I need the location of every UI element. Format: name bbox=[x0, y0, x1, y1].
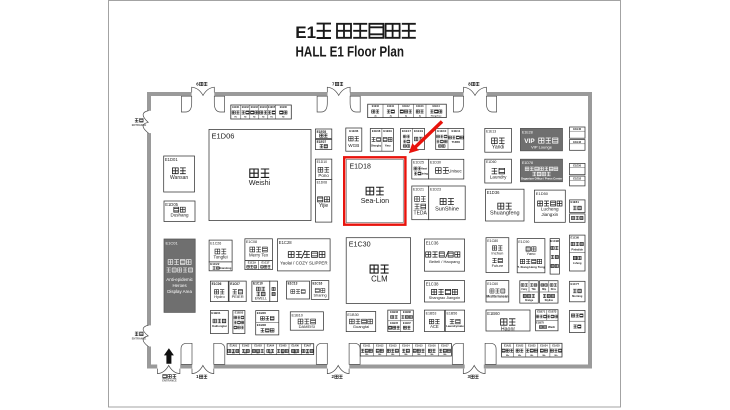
svg-text:E1A16: E1A16 bbox=[428, 345, 436, 348]
svg-text:E1B10: E1B10 bbox=[292, 313, 303, 317]
svg-text:E1B75: E1B75 bbox=[536, 321, 544, 325]
svg-text:E1E06: E1E06 bbox=[280, 106, 288, 109]
svg-text:Inchun: Inchun bbox=[491, 251, 503, 256]
svg-text:E1A25: E1A25 bbox=[552, 344, 560, 347]
svg-text:Yaolai / COZY SLIPPER: Yaolai / COZY SLIPPER bbox=[280, 261, 327, 266]
svg-text:E1D10: E1D10 bbox=[317, 160, 327, 164]
svg-text:Shuangfeng: Shuangfeng bbox=[490, 211, 520, 217]
svg-text:Tbk: Tbk bbox=[531, 288, 536, 291]
svg-text:Merry Tex: Merry Tex bbox=[249, 253, 269, 258]
svg-text:E1C08: E1C08 bbox=[246, 240, 257, 244]
svg-text:E1B35: E1B35 bbox=[390, 321, 398, 325]
svg-text:E1D18: E1D18 bbox=[350, 164, 372, 171]
svg-text:Laundrymate: Laundrymate bbox=[446, 324, 464, 328]
svg-text:E1B30: E1B30 bbox=[347, 313, 358, 317]
svg-text:E1E05: E1E05 bbox=[268, 106, 276, 109]
svg-text:E1A15: E1A15 bbox=[415, 345, 423, 348]
svg-text:E1E40: E1E40 bbox=[573, 127, 581, 131]
svg-text:E1E01: E1E01 bbox=[232, 106, 240, 109]
svg-text:E1: E1 bbox=[295, 23, 316, 42]
svg-text:Hydro: Hydro bbox=[214, 294, 225, 299]
svg-text:E1B60: E1B60 bbox=[487, 311, 500, 316]
svg-text:E1E10: E1E10 bbox=[437, 129, 446, 133]
svg-text:E1C28: E1C28 bbox=[279, 240, 292, 245]
svg-text:Weishi: Weishi bbox=[249, 178, 271, 187]
svg-text:E1C36: E1C36 bbox=[426, 240, 439, 245]
svg-text:E1A05: E1A05 bbox=[279, 345, 287, 348]
svg-text:E1E14: E1E14 bbox=[433, 105, 441, 108]
svg-text:E1A02: E1A02 bbox=[242, 345, 250, 348]
svg-text:E1E61: E1E61 bbox=[571, 200, 580, 204]
svg-text:E1A06: E1A06 bbox=[291, 345, 299, 348]
svg-text:E1B38: E1B38 bbox=[403, 310, 411, 314]
svg-text:HALL E1 Floor Plan: HALL E1 Floor Plan bbox=[296, 44, 405, 61]
svg-text:E1C06: E1C06 bbox=[212, 282, 222, 286]
svg-text:E1A12: E1A12 bbox=[376, 345, 384, 348]
svg-text:E1A17: E1A17 bbox=[441, 345, 449, 348]
svg-text:E1C26: E1C26 bbox=[210, 241, 221, 245]
svg-text:E1B06: E1B06 bbox=[257, 311, 267, 315]
svg-text:Hangzhou: Hangzhou bbox=[431, 115, 442, 117]
svg-text:ACE: ACE bbox=[430, 324, 439, 329]
svg-text:Heroes: Heroes bbox=[173, 283, 188, 288]
svg-text:Yano: Yano bbox=[526, 251, 536, 256]
svg-text:E1C80: E1C80 bbox=[487, 239, 498, 243]
svg-text:TURKI: TURKI bbox=[452, 140, 461, 144]
svg-text:E1D78: E1D78 bbox=[522, 161, 533, 165]
svg-text:E1D60: E1D60 bbox=[486, 160, 496, 164]
svg-text:E1B73: E1B73 bbox=[548, 310, 556, 314]
svg-text:E1D25: E1D25 bbox=[413, 161, 424, 165]
svg-text:Jiangxin: Jiangxin bbox=[541, 212, 558, 217]
svg-text:E1C38: E1C38 bbox=[426, 282, 439, 287]
svg-text:E1A14: E1A14 bbox=[402, 345, 410, 348]
svg-text:Weili: Weili bbox=[548, 325, 555, 329]
svg-text:Wansan: Wansan bbox=[170, 175, 188, 181]
svg-text:Morning: Morning bbox=[572, 294, 583, 298]
svg-text:E1C01: E1C01 bbox=[166, 241, 179, 246]
svg-text:E1B71: E1B71 bbox=[537, 310, 545, 314]
svg-text:E1B08: E1B08 bbox=[257, 323, 267, 327]
svg-text:Haonr: Haonr bbox=[501, 327, 515, 333]
svg-text:SunShine: SunShine bbox=[435, 207, 459, 213]
svg-text:E1A24: E1A24 bbox=[540, 344, 548, 347]
svg-text:Shandong: Shandong bbox=[219, 266, 232, 270]
svg-text:Orange: Orange bbox=[525, 299, 534, 302]
svg-text:E1A04: E1A04 bbox=[267, 345, 275, 348]
svg-text:Sharing: Sharing bbox=[314, 293, 327, 297]
svg-text:E1E13: E1E13 bbox=[486, 129, 496, 133]
svg-text:E1A13: E1A13 bbox=[389, 345, 397, 348]
svg-text:E1C90: E1C90 bbox=[518, 240, 529, 244]
svg-text:E1A22: E1A22 bbox=[516, 344, 524, 347]
svg-text:Shangrao Jiangxin: Shangrao Jiangxin bbox=[429, 296, 460, 300]
svg-text:E1D08: E1D08 bbox=[317, 181, 327, 185]
svg-text:Unisec: Unisec bbox=[448, 169, 462, 174]
svg-text:E1D05: E1D05 bbox=[165, 202, 178, 207]
svg-text:Display Area: Display Area bbox=[167, 289, 192, 294]
svg-text:E1E13: E1E13 bbox=[416, 105, 424, 108]
svg-text:E1E06: E1E06 bbox=[349, 129, 358, 133]
svg-text:Lucheng: Lucheng bbox=[541, 207, 559, 212]
svg-text:E1B53: E1B53 bbox=[426, 311, 437, 315]
svg-text:ENTRANCE: ENTRANCE bbox=[132, 123, 147, 127]
svg-text:E1E08: E1E08 bbox=[372, 129, 381, 133]
svg-text:Shangbu: Shangbu bbox=[371, 145, 382, 148]
svg-text:E1A03: E1A03 bbox=[254, 345, 262, 348]
svg-text:Guangtai: Guangtai bbox=[353, 324, 369, 329]
svg-text:E1E10: E1E10 bbox=[372, 105, 380, 108]
svg-text:E1B03: E1B03 bbox=[235, 311, 244, 315]
svg-text:E1A07: E1A07 bbox=[304, 345, 312, 348]
svg-text:Mediterranean: Mediterranean bbox=[487, 295, 509, 299]
svg-text:E1C13: E1C13 bbox=[288, 282, 298, 286]
svg-text:E1C77: E1C77 bbox=[571, 282, 580, 286]
svg-text:E1E42: E1E42 bbox=[573, 140, 581, 144]
svg-text:Yijie: Yijie bbox=[319, 203, 328, 209]
svg-text:E1D36: E1D36 bbox=[487, 190, 500, 195]
svg-text:PEIER: PEIER bbox=[232, 294, 244, 299]
svg-text:E1B56: E1B56 bbox=[447, 311, 458, 315]
svg-text:E1E11: E1E11 bbox=[451, 129, 460, 133]
svg-text:E1E52: E1E52 bbox=[573, 176, 581, 180]
svg-text:Lvfeng: Lvfeng bbox=[573, 261, 582, 265]
svg-text:Skyline: Skyline bbox=[545, 299, 554, 302]
svg-text:Sea-Lion: Sea-Lion bbox=[361, 197, 389, 205]
svg-text:Organizer Office / Press Cente: Organizer Office / Press Center bbox=[521, 177, 563, 181]
svg-text:Lining: Lining bbox=[420, 172, 428, 176]
svg-text:DAMEISI: DAMEISI bbox=[299, 324, 315, 329]
svg-text:E1D30: E1D30 bbox=[430, 161, 441, 165]
svg-text:ENTRANCE: ENTRANCE bbox=[162, 378, 177, 382]
svg-text:E1B37: E1B37 bbox=[403, 321, 411, 325]
svg-text:Beiteli / Haopang: Beiteli / Haopang bbox=[429, 259, 459, 264]
svg-text:E1C17: E1C17 bbox=[262, 260, 270, 264]
svg-text:Mlp: Mlp bbox=[542, 288, 547, 291]
svg-text:E1D01: E1D01 bbox=[165, 157, 178, 162]
svg-text:E1A11: E1A11 bbox=[363, 345, 371, 348]
svg-text:Anti-epidemic: Anti-epidemic bbox=[166, 277, 193, 282]
svg-text:Future: Future bbox=[492, 263, 504, 268]
svg-text:E1E03: E1E03 bbox=[251, 106, 259, 109]
svg-text:E1D23: E1D23 bbox=[430, 187, 441, 191]
svg-text:E1D50: E1D50 bbox=[536, 191, 549, 196]
svg-text:Yandi: Yandi bbox=[492, 145, 504, 151]
svg-text:Pinhalide: Pinhalide bbox=[571, 248, 583, 252]
svg-text:T. Xiang Heng Tong: T. Xiang Heng Tong bbox=[517, 265, 545, 269]
svg-text:ENTRANCE: ENTRANCE bbox=[132, 337, 147, 341]
svg-text:E1E04: E1E04 bbox=[260, 106, 268, 109]
svg-text:E1C07: E1C07 bbox=[230, 282, 240, 286]
svg-text:Laundry: Laundry bbox=[490, 175, 507, 180]
svg-text:Tongfei: Tongfei bbox=[214, 254, 228, 259]
svg-text:E1E09: E1E09 bbox=[383, 129, 392, 133]
svg-text:Kaihongtai: Kaihongtai bbox=[212, 324, 227, 328]
svg-text:E1C98: E1C98 bbox=[550, 239, 559, 243]
svg-text:E1D06: E1D06 bbox=[212, 132, 235, 141]
svg-text:E1A21: E1A21 bbox=[504, 344, 512, 347]
svg-text:E1B01: E1B01 bbox=[211, 311, 221, 315]
svg-text:Rms: Rms bbox=[551, 288, 557, 291]
svg-text:E1A23: E1A23 bbox=[528, 344, 536, 347]
svg-text:E1C60: E1C60 bbox=[487, 282, 498, 286]
svg-text:TEDA: TEDA bbox=[414, 211, 428, 217]
svg-text:E1C19: E1C19 bbox=[248, 260, 256, 264]
svg-text:E1C30: E1C30 bbox=[349, 240, 371, 249]
svg-text:E1A01: E1A01 bbox=[230, 345, 238, 348]
svg-text:E1E50: E1E50 bbox=[573, 164, 581, 168]
svg-text:E1E02: E1E02 bbox=[242, 106, 250, 109]
svg-text:EWELL: EWELL bbox=[255, 297, 267, 301]
svg-text:Yimu: Yimu bbox=[385, 145, 391, 148]
svg-text:E1E07: E1E07 bbox=[317, 140, 327, 144]
svg-text:E1E11: E1E11 bbox=[387, 105, 395, 108]
svg-text:E1C10: E1C10 bbox=[253, 282, 263, 286]
svg-text:E1E12: E1E12 bbox=[402, 105, 410, 108]
svg-text:E1E17: E1E17 bbox=[402, 129, 411, 133]
svg-text:E1B36: E1B36 bbox=[390, 310, 398, 314]
svg-text:E1D21: E1D21 bbox=[413, 187, 424, 191]
svg-text:E1E05: E1E05 bbox=[317, 130, 327, 134]
svg-text:Fairy: Fairy bbox=[522, 288, 528, 291]
svg-text:E1E19: E1E19 bbox=[414, 129, 423, 133]
svg-text:Pono: Pono bbox=[318, 173, 329, 178]
svg-text:Hmei: Hmei bbox=[421, 167, 428, 171]
svg-text:CLM: CLM bbox=[371, 275, 387, 284]
svg-text:WGB: WGB bbox=[348, 143, 359, 148]
svg-text:E1E28: E1E28 bbox=[522, 130, 533, 134]
svg-text:E1C95: E1C95 bbox=[571, 236, 580, 240]
svg-text:Dushang: Dushang bbox=[170, 213, 189, 218]
svg-text:E1C16: E1C16 bbox=[313, 281, 323, 285]
svg-text:E1C22: E1C22 bbox=[210, 262, 220, 266]
svg-text:VIP Lounge: VIP Lounge bbox=[531, 144, 553, 149]
